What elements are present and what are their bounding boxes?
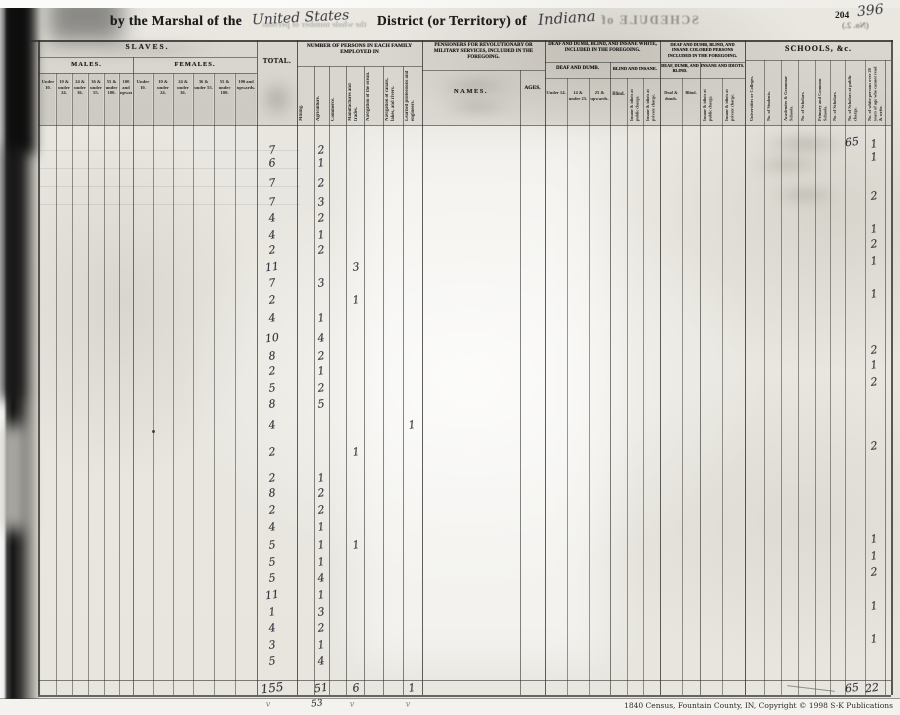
handwritten-total-value: 4 [268, 418, 277, 432]
handwritten-agriculture-value: 2 [317, 381, 326, 395]
column-divider [627, 78, 628, 695]
column-divider [214, 73, 215, 695]
column-divider [643, 78, 644, 695]
employment-column-header: Learned professions and engineers. [405, 68, 421, 123]
slave-age-column-header-female: 100 and upwards. [236, 73, 256, 125]
handwritten-agriculture-value: 2 [317, 621, 326, 635]
column-divider [403, 66, 404, 695]
handwritten-agriculture-value: 2 [317, 176, 326, 190]
white-deaf-column-header: 25 & upwards. [590, 80, 609, 124]
handwritten-learned-professions-value: 1 [408, 418, 417, 432]
colored-deaf-column-header: Deaf & dumb. [661, 80, 681, 124]
handwritten-total-value: 4 [268, 311, 277, 325]
column-divider [193, 73, 194, 695]
colored-deaf-column-header: Blind. [683, 80, 699, 124]
row-divider [38, 695, 891, 697]
handwritten-illiterate-value: 1 [870, 150, 879, 164]
handwritten-illiterate-value: 2 [870, 375, 879, 389]
handwritten-total-value: 6 [268, 156, 277, 170]
column-divider [133, 57, 134, 695]
handwritten-total-value: 7 [268, 195, 277, 209]
binding-dark-blotch-top [4, 0, 34, 154]
handwritten-agriculture-value: 1 [317, 638, 326, 652]
pencil-tally-mark: v [406, 700, 411, 709]
binding-dark-blotch-mid [2, 150, 22, 400]
column-divider [104, 73, 105, 695]
subtitle-colored-deaf: DEAF, DUMB, AND BLIND. [660, 64, 700, 74]
schools-column-header: No. of Scholars at public charge. [847, 61, 864, 123]
column-divider [830, 60, 831, 695]
handwritten-agriculture-value: 3 [317, 276, 326, 290]
column-header-ages: AGES. [520, 85, 545, 91]
header-bleedthrough-text: the whole number of persons [262, 19, 367, 29]
handwritten-total-value: 2 [268, 445, 277, 459]
handwritten-total-value: 11 [264, 588, 279, 603]
column-divider [722, 78, 723, 695]
handwritten-total-value: 2 [268, 293, 277, 307]
handwritten-manufactures-value: 3 [352, 260, 361, 274]
handwritten-total-value: 2 [268, 364, 277, 378]
column-divider [781, 60, 782, 695]
header-printed-prefix: by the Marshal of the [110, 13, 242, 29]
handwritten-total-value: 4 [268, 211, 277, 225]
column-divider [745, 40, 746, 695]
handwritten-agriculture-value: 2 [317, 243, 326, 257]
column-divider [660, 40, 661, 695]
handwritten-illiterate-value: 1 [870, 287, 879, 301]
employment-column-header: Navigation of the ocean. [366, 68, 382, 123]
slave-age-column-header-male: 10 & under 24. [57, 73, 71, 125]
column-divider [72, 73, 73, 695]
employment-column-header: Manufactures and trades. [348, 68, 363, 123]
row-divider [422, 70, 545, 71]
schools-column-header: Academies & Grammar Schools. [783, 61, 797, 123]
handwritten-manufactures-value: 1 [352, 445, 361, 459]
column-divider [610, 62, 611, 695]
handwritten-agriculture-value: 2 [317, 486, 326, 500]
white-insane-column-header: Insane & idiots at private charge. [645, 80, 659, 123]
schools-column-header: No. of white persons over 20 years of ag… [867, 61, 884, 123]
totals-row-diagonal-stroke [787, 685, 835, 692]
handwritten-total-manufactures: 6 [352, 681, 361, 695]
handwritten-agriculture-value: 1 [317, 471, 326, 485]
copyright-caption: 1840 Census, Fountain County, IN, Copyri… [624, 701, 893, 710]
handwritten-manufactures-value: 1 [352, 293, 361, 307]
column-divider [329, 66, 330, 695]
handwritten-agriculture-value: 1 [317, 555, 326, 569]
handwritten-total-illiterate: 22 [864, 681, 879, 696]
handwritten-scholars-value: 65 [844, 135, 859, 150]
column-divider [764, 60, 765, 695]
handwritten-manufactures-value: 1 [352, 538, 361, 552]
handwritten-agriculture-value: 4 [317, 654, 326, 668]
handwritten-total-value: 8 [268, 486, 277, 500]
handwritten-total-agriculture: 51 [313, 681, 328, 696]
slave-age-column-header-female: Under 10. [134, 73, 152, 125]
section-title-schools: SCHOOLS, &c. [746, 44, 891, 53]
row-divider [40, 204, 300, 205]
row-divider [38, 57, 257, 58]
handwritten-total-value: 7 [268, 276, 277, 290]
section-title-employment: NUMBER OF PERSONS IN EACH FAMILY EMPLOYE… [299, 43, 420, 56]
section-title-white-disabled: DEAF AND DUMB, BLIND, AND INSANE WHITE, … [547, 42, 658, 54]
column-divider [257, 40, 258, 695]
column-divider [153, 73, 154, 695]
handwritten-total-total: 155 [260, 680, 284, 697]
handwritten-illiterate-value: 1 [870, 599, 879, 613]
total-header-bleed-smudge [258, 78, 296, 120]
handwritten-total-value: 7 [268, 143, 277, 157]
white-insane-column-header: Insane & idiots at public charge. [629, 80, 642, 123]
schools-column-header: No. of Scholars. [800, 61, 814, 123]
employment-column-header: Commerce. [331, 68, 345, 123]
handwritten-agriculture-value: 2 [317, 503, 326, 517]
column-divider [865, 60, 866, 695]
slave-age-column-header-female: 10 & under 24. [154, 73, 172, 125]
employment-column-header: Agriculture. [316, 68, 328, 123]
handwritten-illiterate-value: 2 [870, 343, 879, 357]
slave-age-column-header-female: 55 & under 100. [215, 73, 234, 125]
handwritten-agriculture-value: 1 [317, 364, 326, 378]
colored-insane-column-header: Insane & idiots at public charge. [702, 80, 721, 123]
subtitle-white-blind: BLIND AND INSANE. [610, 66, 660, 71]
column-divider [173, 73, 174, 695]
handwritten-agriculture-value: 1 [317, 228, 326, 242]
white-blind-column-header: Blind. [611, 80, 626, 124]
handwritten-agriculture-value: 2 [317, 143, 326, 157]
census-scan-page: by the Marshal of the United States the … [0, 0, 900, 715]
binding-light-patch [0, 425, 26, 530]
white-deaf-column-header: 14 & under 25. [568, 80, 588, 124]
column-divider [798, 60, 799, 695]
handwritten-illiterate-value: 2 [870, 237, 879, 251]
handwritten-agriculture-value: 3 [317, 195, 326, 209]
handwritten-total-value: 8 [268, 397, 277, 411]
names-box-bleed-smudge [436, 78, 516, 94]
handwritten-agriculture-value: 2 [317, 349, 326, 363]
row-divider [0, 698, 900, 699]
column-divider [383, 66, 384, 695]
slave-age-column-header-male: Under 10. [41, 73, 55, 125]
handwritten-agriculture-value: 1 [317, 588, 326, 602]
pencil-tally-mark: v [350, 700, 355, 709]
handwritten-illiterate-value: 1 [870, 254, 879, 268]
handwritten-agriculture-value: 3 [317, 605, 326, 619]
handwritten-total-value: 5 [268, 555, 277, 569]
handwritten-agriculture-value: 1 [317, 520, 326, 534]
column-divider [891, 40, 893, 695]
row-divider [40, 168, 300, 169]
handwritten-illiterate-value: 2 [870, 189, 879, 203]
employment-column-header: Navigation of canals, lakes, and rivers. [385, 68, 402, 123]
section-title-pensioners: PENSIONERS FOR REVOLUTIONARY OR MILITARY… [424, 43, 543, 61]
handwritten-total-value: 1 [268, 605, 277, 619]
column-divider [520, 70, 521, 695]
column-divider [88, 73, 89, 695]
slave-age-column-header-male: 36 & under 55. [89, 73, 103, 125]
handwritten-total-value: 10 [264, 331, 279, 346]
row-divider [38, 680, 891, 681]
schools-column-header: Primary and Common Schools. [817, 61, 829, 123]
handwritten-total-value: 5 [268, 654, 277, 668]
handwritten-illiterate-value: 1 [870, 632, 879, 646]
handwritten-total-value: 4 [268, 520, 277, 534]
column-divider [545, 40, 546, 695]
handwritten-total-value: 7 [268, 176, 277, 190]
handwritten-illiterate-value: 1 [870, 222, 879, 236]
column-divider [885, 60, 886, 695]
column-divider [38, 40, 40, 695]
column-divider [845, 60, 846, 695]
handwritten-total-value: 4 [268, 621, 277, 635]
subtitle-white-deaf: DEAF AND DUMB. [545, 66, 610, 71]
slave-age-column-header-male: 24 & under 36. [73, 73, 87, 125]
column-divider [119, 73, 120, 695]
names-box-bleed-smudge-2 [440, 100, 514, 114]
handwritten-agriculture-value: 2 [317, 211, 326, 225]
handwritten-total-value: 2 [268, 471, 277, 485]
subtitle-males: MALES. [40, 61, 133, 68]
handwritten-total-value: 2 [268, 503, 277, 517]
row-divider [545, 62, 745, 63]
handwritten-total-value: 3 [268, 638, 277, 652]
subtitle-colored-insane: INSANE AND IDIOTS. [700, 64, 745, 69]
header-handwritten-territory: Indiana [537, 7, 596, 29]
schools-bleed-smudge-1 [758, 135, 850, 153]
handwritten-illiterate-value: 2 [870, 565, 879, 579]
handwritten-total-value: 8 [268, 349, 277, 363]
handwritten-agriculture-value: 5 [317, 397, 326, 411]
header-bleedthrough-schedule: SCHEDULE of [600, 13, 699, 28]
white-deaf-column-header: Under 14. [546, 80, 566, 124]
column-divider [682, 78, 683, 695]
subtitle-females: FEMALES. [133, 61, 257, 68]
header-printed-district-label: District (or Territory) of [377, 13, 527, 29]
handwritten-total-scholars: 65 [844, 681, 859, 696]
handwritten-agriculture-value: 4 [317, 571, 326, 585]
row-divider [38, 125, 891, 126]
slave-age-column-header-male: 100 and upwards. [120, 73, 132, 125]
handwritten-total-value: 5 [268, 571, 277, 585]
handwritten-agriculture-value: 1 [317, 156, 326, 170]
row-divider [30, 40, 893, 42]
employment-column-header: Mining. [299, 68, 313, 123]
handwritten-illiterate-value: 1 [870, 532, 879, 546]
handwritten-illiterate-value: 1 [870, 549, 879, 563]
row-divider [545, 78, 745, 79]
column-divider [235, 73, 236, 695]
handwritten-illiterate-value: 1 [870, 358, 879, 372]
schools-column-header: No. of Scholars. [832, 61, 844, 123]
handwritten-agriculture-value: 1 [317, 311, 326, 325]
column-divider [297, 40, 298, 695]
section-title-colored-disabled: DEAF AND DUMB, BLIND, AND INSANE COLORED… [662, 42, 743, 58]
column-divider [56, 73, 57, 695]
column-divider [700, 62, 701, 695]
handwritten-total-value: 4 [268, 228, 277, 242]
column-divider [314, 66, 315, 695]
pencil-tally-mark: 53 [311, 698, 324, 709]
row-divider [40, 150, 300, 151]
slaves-title-bleed-smudge [90, 44, 220, 54]
schools-bleed-smudge-2 [748, 158, 828, 172]
schools-column-header: No. of Students. [766, 61, 780, 123]
pencil-tally-mark: v [266, 700, 271, 709]
handwritten-illiterate-value: 2 [870, 439, 879, 453]
slave-age-column-header-female: 24 & under 36. [174, 73, 192, 125]
column-divider [567, 78, 568, 695]
handwritten-illiterate-value: 1 [870, 137, 879, 151]
column-divider [364, 66, 365, 695]
slave-age-column-header-male: 55 & under 100. [105, 73, 118, 125]
handwritten-total-value: 11 [264, 260, 279, 275]
handwritten-total-learned-professions: 1 [408, 681, 417, 695]
column-divider [346, 66, 347, 695]
handwritten-total-value: 2 [268, 243, 277, 257]
handwritten-agriculture-value: 4 [317, 331, 326, 345]
handwritten-total-value: 5 [268, 381, 277, 395]
column-divider [422, 40, 423, 695]
handwritten-total-value: 5 [268, 538, 277, 552]
row-divider [297, 66, 422, 67]
column-header-total: TOTAL. [257, 57, 297, 65]
column-divider [815, 60, 816, 695]
top-edge-strip [0, 0, 900, 8]
column-divider [589, 78, 590, 695]
page-number-handwritten: 396 [856, 2, 884, 21]
handwritten-agriculture-value: 1 [317, 538, 326, 552]
colored-insane-column-header: Insane & idiots at private charge. [724, 80, 744, 123]
page-note-mirrored: (No. 2.) [842, 20, 869, 30]
slave-age-column-header-female: 36 & under 55. [194, 73, 213, 125]
row-divider [40, 186, 300, 187]
schools-column-header: Universities or Colleges. [749, 61, 763, 123]
